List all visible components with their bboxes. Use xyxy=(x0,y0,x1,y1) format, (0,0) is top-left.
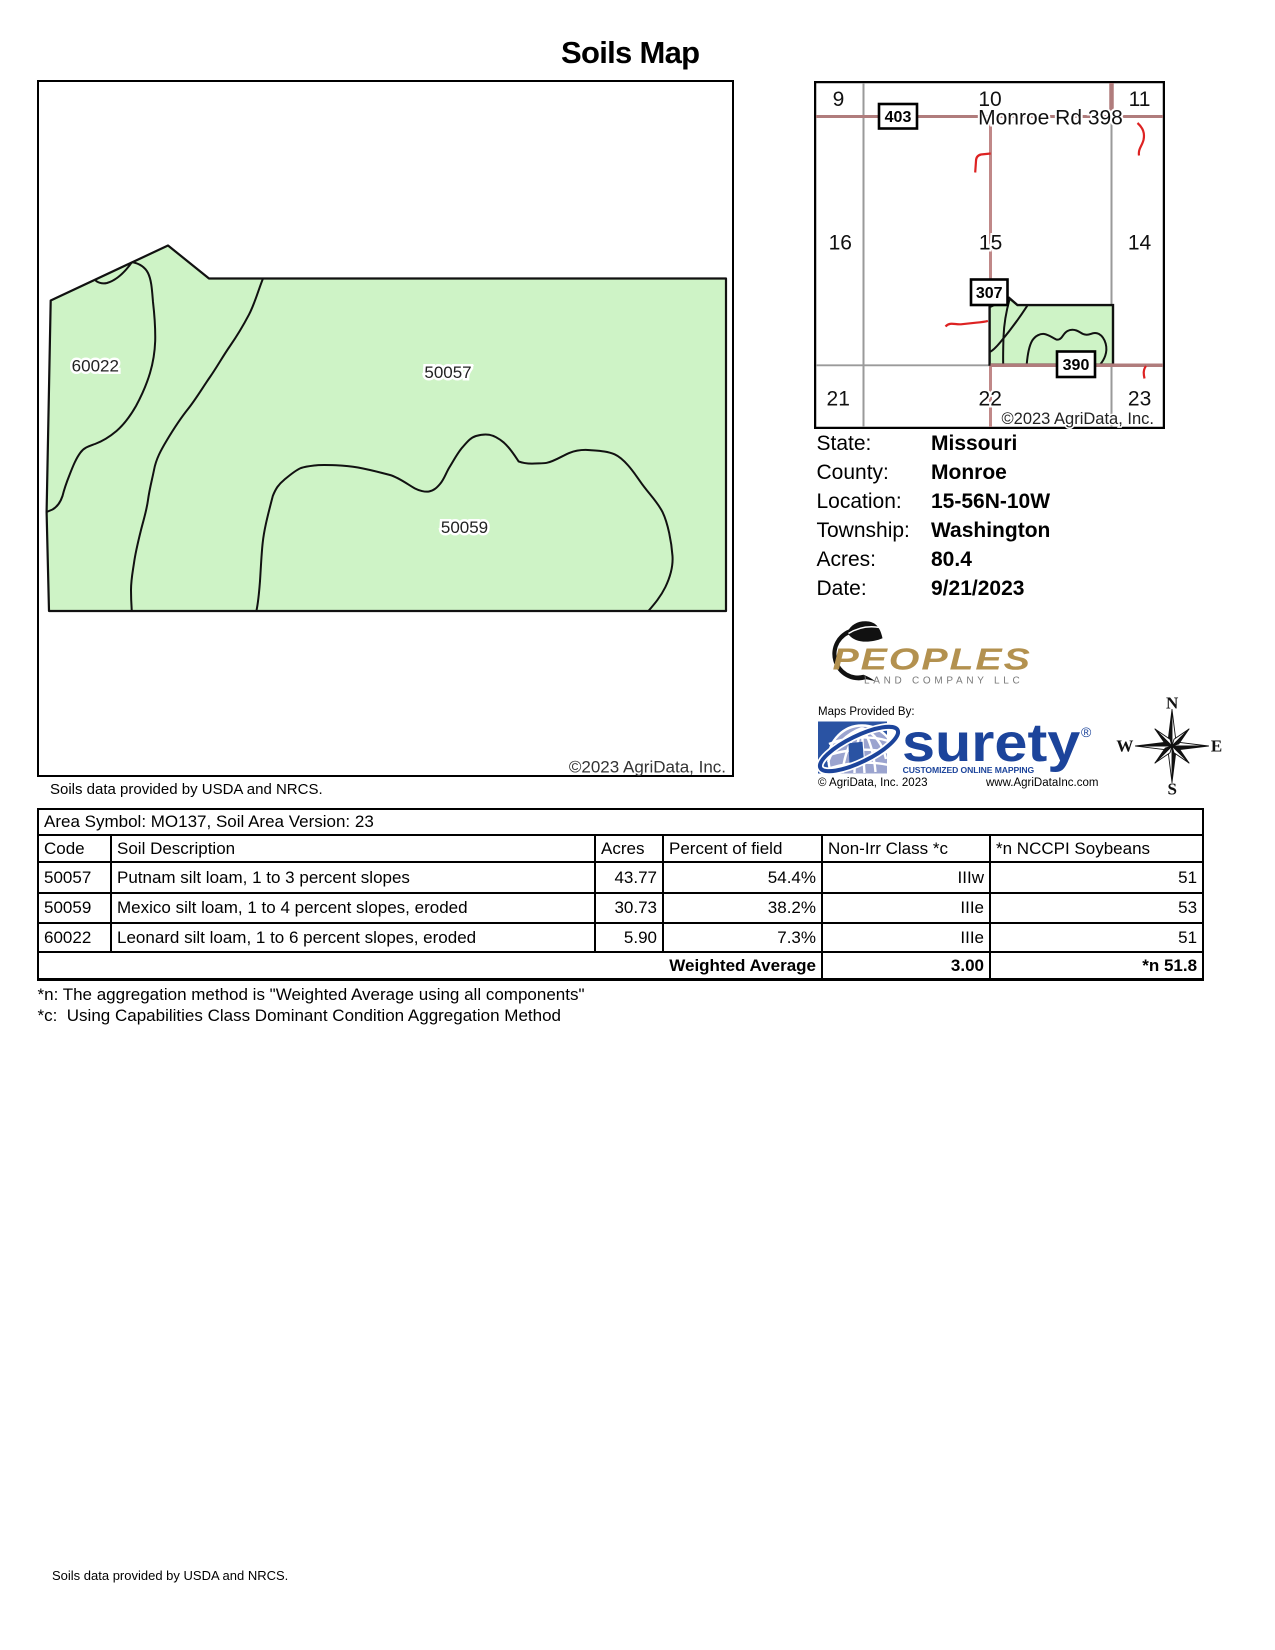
svg-text:14: 14 xyxy=(1128,231,1152,254)
svg-text:23: 23 xyxy=(1128,387,1151,410)
svg-text:®: ® xyxy=(1081,724,1092,740)
svg-text:9: 9 xyxy=(833,88,845,111)
svg-text:21: 21 xyxy=(827,387,850,410)
svg-text:S: S xyxy=(1167,780,1176,799)
svg-text:10: 10 xyxy=(978,88,1001,111)
svg-text:©2023 AgriData, Inc.: ©2023 AgriData, Inc. xyxy=(1002,410,1155,428)
svg-text:390: 390 xyxy=(1063,357,1090,374)
svg-text:LAND COMPANY LLC: LAND COMPANY LLC xyxy=(864,675,1023,686)
svg-text:PEOPLES: PEOPLES xyxy=(833,642,1032,677)
svg-text:E: E xyxy=(1211,736,1222,755)
svg-text:60022: 60022 xyxy=(72,357,119,376)
svg-text:11: 11 xyxy=(1129,88,1151,111)
svg-text:15: 15 xyxy=(979,231,1002,254)
svg-text:50059: 50059 xyxy=(441,518,488,537)
svg-text:16: 16 xyxy=(829,231,852,254)
svg-text:50057: 50057 xyxy=(424,363,471,382)
svg-text:403: 403 xyxy=(885,109,912,126)
svg-text:CUSTOMIZED ONLINE MAPPING: CUSTOMIZED ONLINE MAPPING xyxy=(903,765,1035,775)
svg-text:22: 22 xyxy=(979,387,1002,410)
svg-text:©2023 AgriData, Inc.: ©2023 AgriData, Inc. xyxy=(569,758,726,777)
svg-text:N: N xyxy=(1166,694,1179,713)
svg-text:307: 307 xyxy=(976,285,1003,302)
svg-text:W: W xyxy=(1116,736,1133,755)
